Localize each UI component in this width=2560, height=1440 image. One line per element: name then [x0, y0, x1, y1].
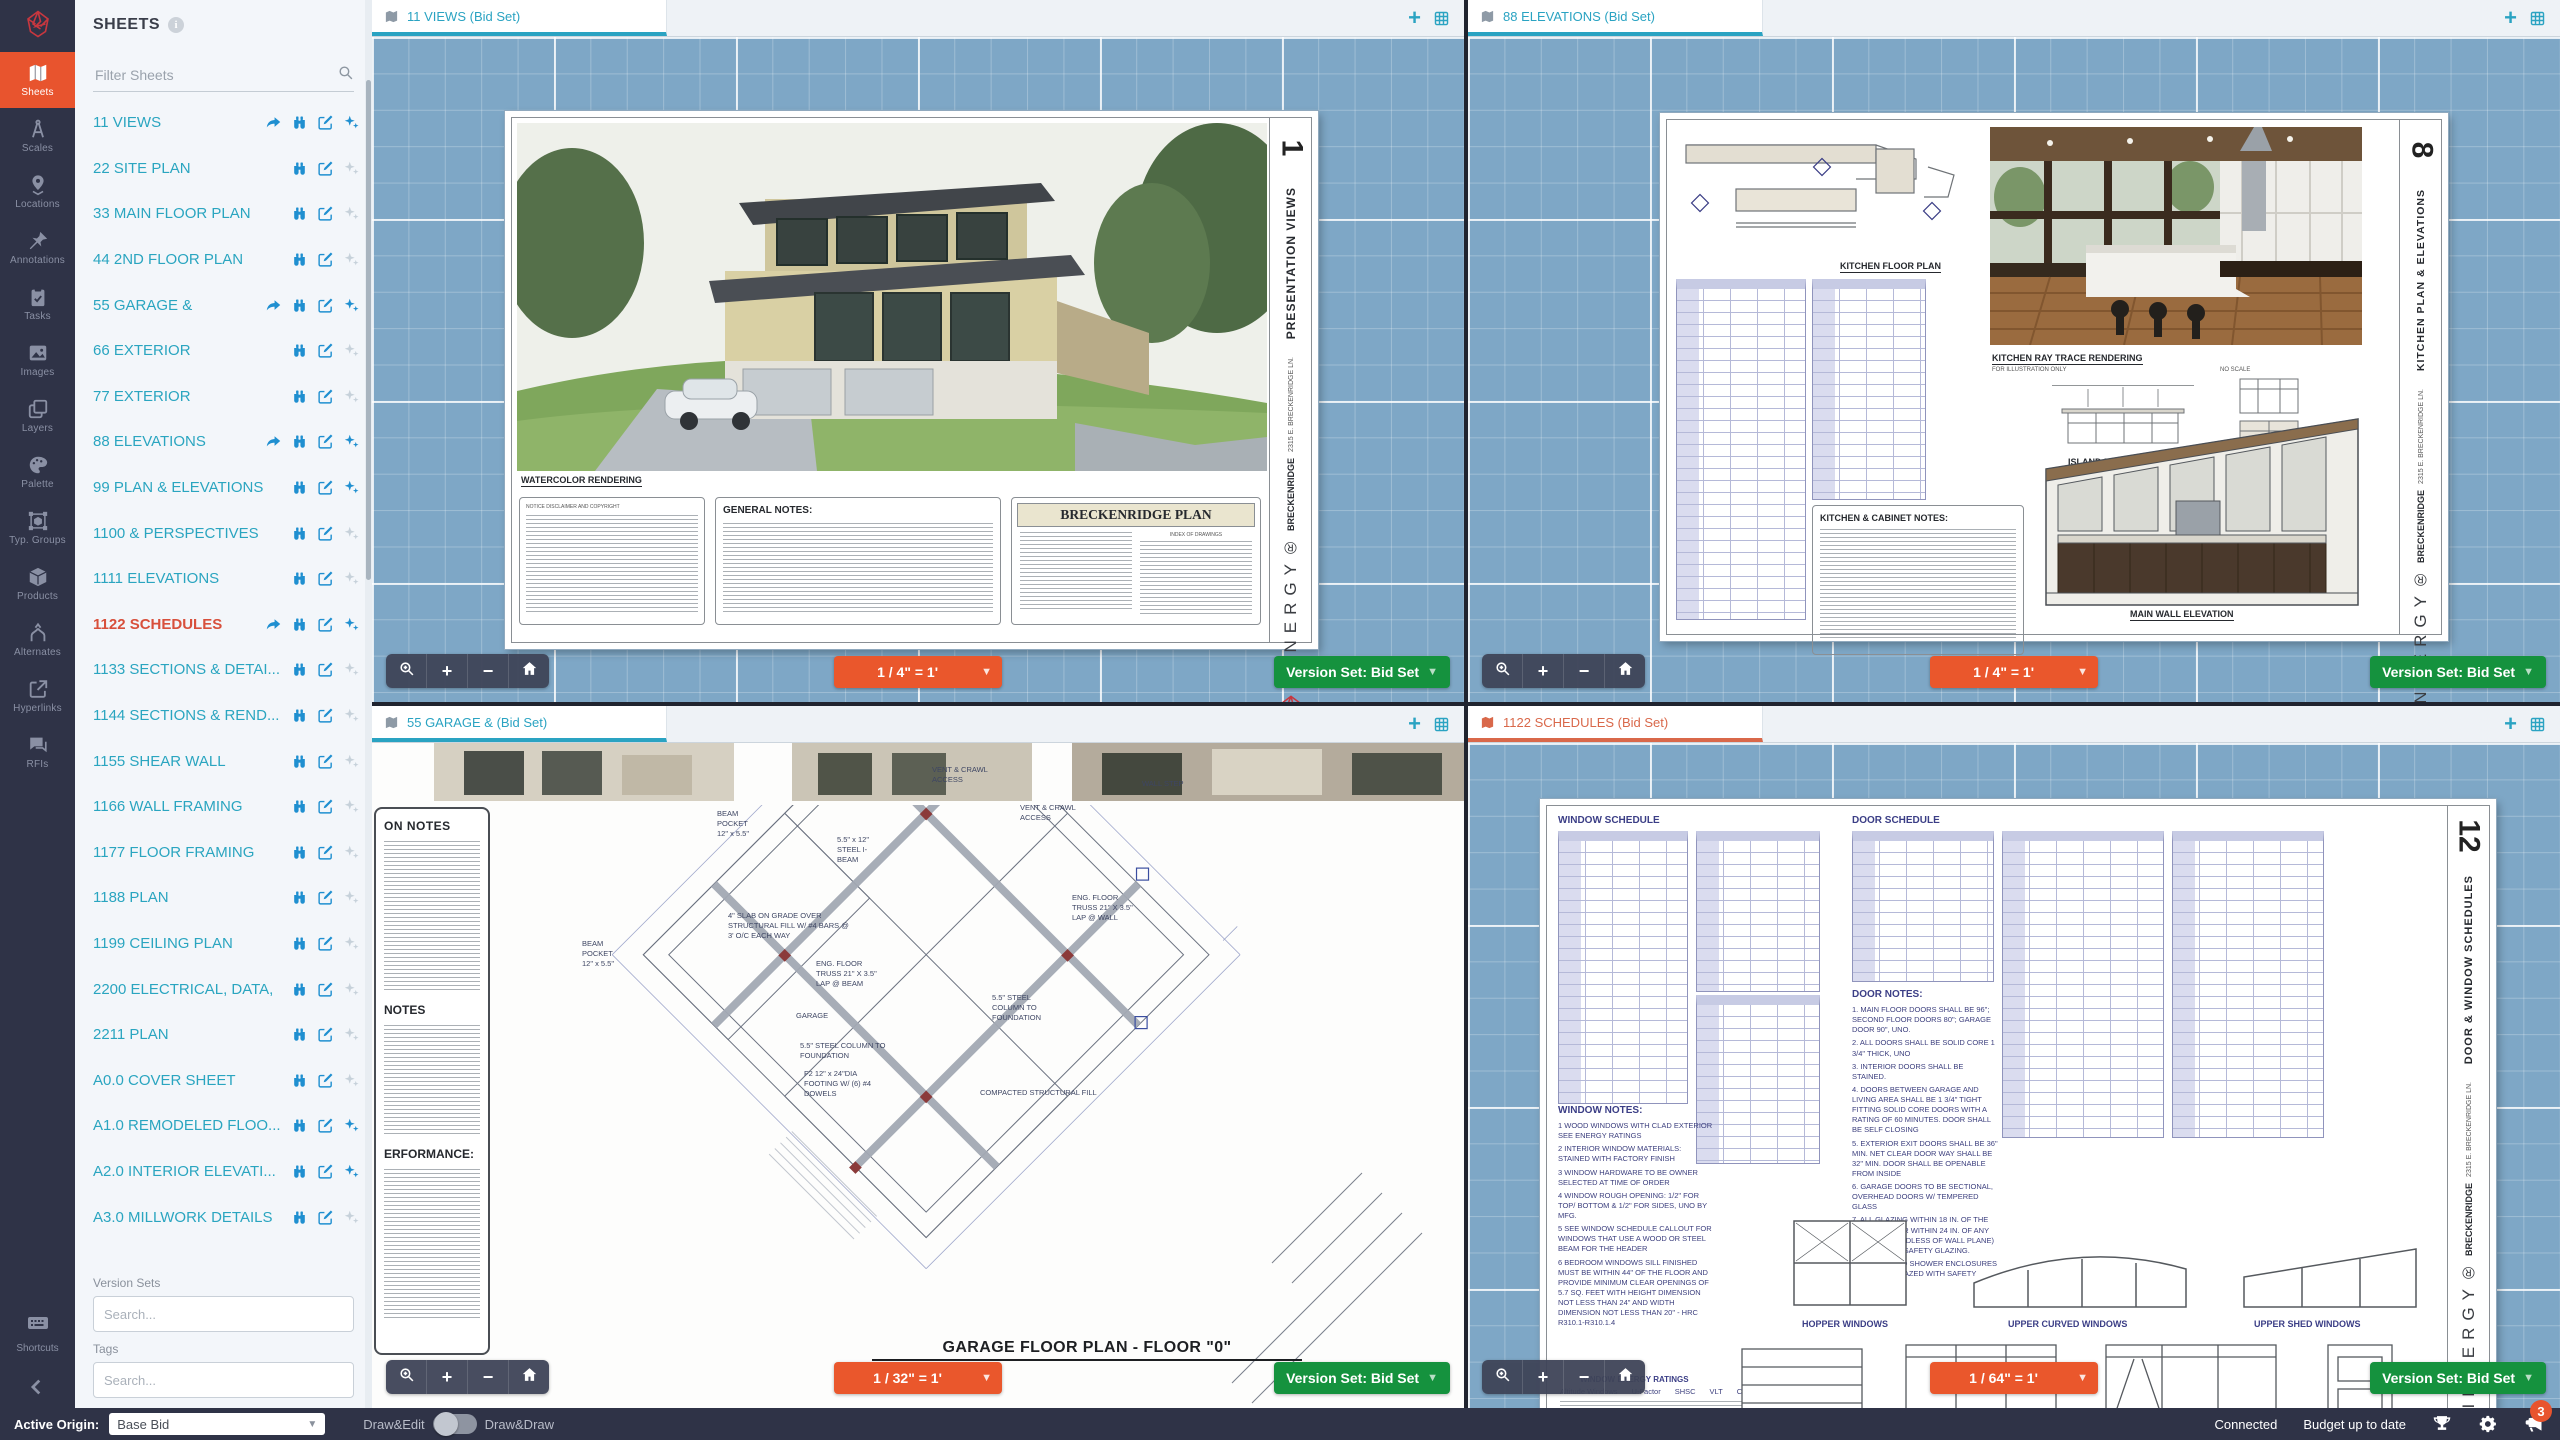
caret-down-icon: ▼ [2077, 666, 2088, 678]
add-tab-button[interactable]: + [1408, 713, 1421, 735]
sparkles-icon[interactable] [343, 753, 360, 770]
kitchen-rendering [1990, 127, 2362, 345]
sheet-project: BRECKENRIDGE [2416, 490, 2426, 563]
sheet-paper-11-views[interactable]: WATERCOLOR RENDERING NOTICE DISCLAIMER A… [505, 111, 1318, 649]
sheet-address: 2315 E. BRECKENRIDGE LN. [2466, 1082, 2473, 1177]
render-caption: WATERCOLOR RENDERING [521, 475, 642, 487]
add-tab-button[interactable]: + [2504, 7, 2517, 29]
scale-dropdown[interactable]: 1 / 32" = 1'▼ [834, 1362, 1002, 1394]
window-type-label: HOPPER WINDOWS [1802, 1319, 1888, 1329]
zoom-in-button[interactable]: + [427, 1360, 468, 1394]
project-title: BRECKENRIDGE PLAN [1017, 503, 1255, 527]
tabbar-actions: + [2490, 0, 2560, 36]
render-sub-caption: FOR ILLUSTRATION ONLY [1992, 367, 2066, 373]
edit-icon[interactable] [317, 342, 334, 359]
zoom-tool-button[interactable] [1482, 1360, 1523, 1394]
energy-col: VLT [1710, 1387, 1723, 1397]
zoom-out-button[interactable]: − [468, 654, 509, 688]
edit-icon[interactable] [317, 479, 334, 496]
sheet-list-item-1144-sections-rend[interactable]: 1144 SECTIONS & REND... [75, 693, 372, 739]
binoculars-icon[interactable] [291, 707, 308, 724]
zoom-controls: + − [386, 1360, 549, 1394]
sheet-list-item-88-elevations[interactable]: 88 ELEVATIONS [75, 419, 372, 465]
version-set-label: Version Set: Bid Set [1286, 1370, 1419, 1386]
sparkles-icon[interactable] [343, 707, 360, 724]
sheet-number: 1 [1274, 140, 1308, 157]
sheet-name: 33 MAIN FLOOR PLAN [93, 205, 291, 222]
rail-item-tasks[interactable]: Tasks [0, 276, 75, 332]
home-icon [521, 1366, 538, 1388]
sheet-list-item-a1-0-remodeled-floo[interactable]: A1.0 REMODELED FLOO... [75, 1103, 372, 1149]
sheet-name: A1.0 REMODELED FLOO... [93, 1117, 291, 1134]
edit-icon[interactable] [317, 707, 334, 724]
note-line: 6 BEDROOM WINDOWS SILL FINISHED MUST BE … [1558, 1258, 1714, 1329]
sheet-side-title: PRESENTATION VIEWS [1284, 187, 1298, 339]
sheet-list-item-77-exterior[interactable]: 77 EXTERIOR [75, 374, 372, 420]
binoculars-icon[interactable] [291, 981, 308, 998]
clipboard-icon [27, 286, 49, 308]
sheet-name: 22 SITE PLAN [93, 160, 291, 177]
statusbar-left: Active Origin: Base Bid ▼ Draw&Edit Draw… [0, 1413, 554, 1435]
binoculars-icon[interactable] [291, 1026, 308, 1043]
door-notes-title: DOOR NOTES: [1852, 989, 1923, 1000]
sheet-list: 11 VIEWS 22 SITE PLAN 33 MAIN FLOOR PLAN… [75, 100, 372, 1240]
sheet-side-title: DOOR & WINDOW SCHEDULES [2463, 875, 2475, 1064]
canvas-11-views[interactable]: WATERCOLOR RENDERING NOTICE DISCLAIMER A… [372, 37, 1464, 702]
collapse-panel-button[interactable] [26, 1376, 50, 1400]
app-logo[interactable] [0, 0, 75, 52]
gear-icon[interactable] [2478, 1414, 2498, 1434]
binoculars-icon[interactable] [291, 205, 308, 222]
zoom-tool-button[interactable] [386, 1360, 427, 1394]
note-line: 5. EXTERIOR EXIT DOORS SHALL BE 36" MIN.… [1852, 1139, 1998, 1180]
binoculars-icon[interactable] [291, 479, 308, 496]
chevron-left-icon [26, 1385, 48, 1402]
binoculars-icon[interactable] [291, 616, 308, 633]
sparkles-icon[interactable] [343, 981, 360, 998]
binoculars-icon[interactable] [291, 297, 308, 314]
notes-heading-3: ERFORMANCE: [384, 1147, 480, 1161]
sparkles-icon[interactable] [343, 661, 360, 678]
home-icon [1617, 1366, 1634, 1388]
version-set-button[interactable]: Version Set: Bid Set▼ [1274, 656, 1450, 688]
pushpin-icon [27, 230, 49, 252]
sheet-list-item-1155-shear-wall[interactable]: 1155 SHEAR WALL [75, 738, 372, 784]
tags-label: Tags [93, 1342, 354, 1356]
tabbar: 88 ELEVATIONS (Bid Set) + [1468, 0, 2560, 37]
sparkles-icon[interactable] [343, 388, 360, 405]
zoom-home-button[interactable] [1605, 654, 1645, 688]
window-schedule-table-3 [1696, 995, 1820, 1164]
logo-icon [23, 9, 53, 44]
canvas-1122-schedules[interactable]: WINDOW SCHEDULE DOOR SCHEDULE DOOR NOTES… [1468, 743, 2560, 1408]
sheet-list-item-1188-plan[interactable]: 1188 PLAN [75, 875, 372, 921]
window-type-label: UPPER CURVED WINDOWS [2008, 1319, 2127, 1329]
edit-icon[interactable] [317, 889, 334, 906]
note-line: 1. MAIN FLOOR DOORS SHALL BE 96"; SECOND… [1852, 1005, 1998, 1035]
upper-curved-windows-figure [1970, 1237, 2190, 1311]
house-rendering [517, 123, 1267, 471]
sheet-list-item-1111-elevations[interactable]: 1111 ELEVATIONS [75, 556, 372, 602]
scale-value: 1 / 32" = 1' [834, 1370, 981, 1386]
sheet-name: 1133 SECTIONS & DETAI... [93, 661, 291, 678]
kitchen-notes-title: KITCHEN & CABINET NOTES: [1820, 513, 2016, 523]
sheet-name: 77 EXTERIOR [93, 388, 291, 405]
kitchen-floor-plan-figure [1676, 127, 1976, 247]
sparkles-icon[interactable] [343, 1117, 360, 1134]
sheet-number: 12 [2452, 819, 2486, 852]
sheet-list-item-66-exterior[interactable]: 66 EXTERIOR [75, 328, 372, 374]
sparkles-icon[interactable] [343, 297, 360, 314]
sheet-list-item-1199-ceiling-plan[interactable]: 1199 CEILING PLAN [75, 921, 372, 967]
version-set-button[interactable]: Version Set: Bid Set▼ [2370, 656, 2546, 688]
zoom-controls: + − [1482, 654, 1645, 688]
tab-88-elevations[interactable]: 88 ELEVATIONS (Bid Set) [1468, 0, 1763, 36]
binoculars-icon[interactable] [291, 661, 308, 678]
share-icon[interactable] [265, 297, 282, 314]
scale-value: 1 / 4" = 1' [1930, 664, 2077, 680]
sheet-paper-1122-schedules[interactable]: WINDOW SCHEDULE DOOR SCHEDULE DOOR NOTES… [1540, 799, 2496, 1408]
binoculars-icon[interactable] [291, 844, 308, 861]
trophy-icon[interactable] [2432, 1414, 2452, 1434]
sheet-list-item-99-plan-elevations[interactable]: 99 PLAN & ELEVATIONS [75, 465, 372, 511]
sheet-list-scrollbar[interactable] [365, 0, 372, 1408]
zoom-controls: + − [386, 654, 549, 688]
rail-bottom: Shortcuts [0, 1311, 75, 1400]
sheet-name: 66 EXTERIOR [93, 342, 291, 359]
sheet-name: 2211 PLAN [93, 1026, 291, 1043]
sparkles-icon[interactable] [343, 433, 360, 450]
filter-sheets-input[interactable] [93, 66, 358, 84]
edit-icon[interactable] [317, 388, 334, 405]
rail-item-hyperlinks[interactable]: Hyperlinks [0, 668, 75, 724]
version-set-button[interactable]: Version Set: Bid Set▼ [2370, 1362, 2546, 1394]
rail-item-rfis[interactable]: RFIs [0, 724, 75, 780]
sheet-title-strip: 1 PRESENTATION VIEWS 2315 E. BRECKENRIDG… [1269, 117, 1312, 643]
alternates-icon [27, 622, 49, 644]
sheet-list-item-a0-0-cover-sheet[interactable]: A0.0 COVER SHEET [75, 1057, 372, 1103]
rail-item-sheets[interactable]: Sheets [0, 52, 75, 108]
edit-icon[interactable] [317, 570, 334, 587]
door-schedule-title: DOOR SCHEDULE [1852, 815, 1940, 826]
sheet-address: 2315 E. BRECKENRIDGE LN. [2418, 389, 2425, 484]
binoculars-icon[interactable] [291, 342, 308, 359]
binoculars-icon[interactable] [291, 798, 308, 815]
scale-dropdown[interactable]: 1 / 4" = 1'▼ [834, 656, 1002, 688]
edit-icon[interactable] [317, 160, 334, 177]
sheet-name: 88 ELEVATIONS [93, 433, 265, 450]
magnifier-icon [398, 660, 415, 682]
add-tab-button[interactable]: + [2504, 713, 2517, 735]
edit-icon[interactable] [317, 1072, 334, 1089]
sheets-panel-title: SHEETS [93, 16, 160, 34]
viewport-55-garage: 55 GARAGE & (Bid Set) + [372, 706, 1464, 1408]
info-icon[interactable]: i [168, 17, 184, 33]
tags-search-input[interactable] [93, 1362, 354, 1398]
notes-heading-1: ON NOTES [384, 819, 480, 833]
scale-dropdown[interactable]: 1 / 4" = 1'▼ [1930, 656, 2098, 688]
door-schedule-table-2 [2002, 831, 2164, 1138]
add-tab-button[interactable]: + [1408, 7, 1421, 29]
sparkles-icon[interactable] [343, 844, 360, 861]
notes-heading-2: NOTES [384, 1003, 480, 1017]
connection-status: Connected [2214, 1417, 2277, 1432]
zoom-controls: + − [1482, 1360, 1645, 1394]
sparkles-icon[interactable] [343, 251, 360, 268]
edit-icon[interactable] [317, 661, 334, 678]
sheet-list-item-1166-wall-framing[interactable]: 1166 WALL FRAMING [75, 784, 372, 830]
scrollbar-thumb[interactable] [366, 80, 371, 580]
zoom-tool-button[interactable] [1482, 654, 1523, 688]
sheet-title-strip: 8 KITCHEN PLAN & ELEVATIONS 2315 E. BREC… [2399, 119, 2442, 635]
active-origin-label: Active Origin: [14, 1417, 99, 1432]
zoom-out-button[interactable]: − [1564, 1360, 1605, 1394]
megaphone-button[interactable]: 3 [2524, 1414, 2544, 1434]
sheet-icon [1480, 9, 1495, 24]
zoom-in-button[interactable]: + [1523, 1360, 1564, 1394]
keyboard-icon [26, 1311, 50, 1340]
tabbar-actions: + [1394, 0, 1464, 36]
tab-11-views[interactable]: 11 VIEWS (Bid Set) [372, 0, 667, 36]
sparkles-icon[interactable] [343, 525, 360, 542]
sheet-list-item-1177-floor-framing[interactable]: 1177 FLOOR FRAMING [75, 830, 372, 876]
sparkles-icon[interactable] [343, 1026, 360, 1043]
door-schedule-table-3 [2172, 831, 2324, 1138]
zoom-out-button[interactable]: − [468, 1360, 509, 1394]
caret-down-icon: ▼ [1427, 1372, 1438, 1384]
note-line: 6. GARAGE DOORS TO BE SECTIONAL, OVERHEA… [1852, 1182, 1998, 1212]
rail-item-locations[interactable]: Locations [0, 164, 75, 220]
sheet-side-title: KITCHEN PLAN & ELEVATIONS [2415, 189, 2427, 371]
grid-view-button[interactable] [1433, 716, 1450, 733]
sheet-name: 1122 SCHEDULES [93, 616, 265, 633]
active-origin-value: Base Bid [117, 1417, 307, 1432]
rail-item-annotations[interactable]: Annotations [0, 220, 75, 276]
note-line: 1 WOOD WINDOWS WITH CLAD EXTERIOR SEE EN… [1558, 1121, 1714, 1141]
sheet-project: BRECKENRIDGE [1286, 458, 1296, 531]
binoculars-icon[interactable] [291, 1117, 308, 1134]
canvas-55-garage[interactable]: ON NOTES NOTES ERFORMANCE: [372, 743, 1464, 1408]
sheet-list-item-a2-0-interior-elevati[interactable]: A2.0 INTERIOR ELEVATI... [75, 1149, 372, 1195]
edit-icon[interactable] [317, 616, 334, 633]
share-icon[interactable] [265, 616, 282, 633]
render-scale-caption: NO SCALE [2220, 367, 2250, 373]
image-icon [27, 342, 49, 364]
rail-item-palette[interactable]: Palette [0, 444, 75, 500]
disclaimer-title: NOTICE DISCLAIMER AND COPYRIGHT [526, 504, 698, 510]
window-notes-title: WINDOW NOTES: [1558, 1105, 1642, 1116]
sheet-list-item-44-2nd-floor-plan[interactable]: 44 2ND FLOOR PLAN [75, 237, 372, 283]
sheet-list-item-1133-sections-detai[interactable]: 1133 SECTIONS & DETAI... [75, 647, 372, 693]
zoom-home-button[interactable] [509, 654, 549, 688]
toggle-knob[interactable] [434, 1412, 458, 1436]
rail-item-products[interactable]: Products [0, 556, 75, 612]
sheet-list-item-a3-0-millwork-details[interactable]: A3.0 MILLWORK DETAILS [75, 1194, 372, 1240]
sheet-name: 11 VIEWS [93, 114, 265, 131]
binoculars-icon[interactable] [291, 433, 308, 450]
binoculars-icon[interactable] [291, 1163, 308, 1180]
search-icon [337, 64, 354, 81]
sheet-name: 1155 SHEAR WALL [93, 753, 291, 770]
edit-icon[interactable] [317, 753, 334, 770]
rail-item-typ-groups[interactable]: Typ. Groups [0, 500, 75, 556]
binoculars-icon[interactable] [291, 114, 308, 131]
sheet-list-item-55-garage[interactable]: 55 GARAGE & [75, 282, 372, 328]
sparkles-icon[interactable] [343, 114, 360, 131]
tab-label: 88 ELEVATIONS (Bid Set) [1503, 9, 1655, 24]
edit-icon[interactable] [317, 935, 334, 952]
binoculars-icon[interactable] [291, 935, 308, 952]
version-set-label: Version Set: Bid Set [2382, 1370, 2515, 1386]
window-type-label: UPPER SHED WINDOWS [2254, 1319, 2361, 1329]
rail-item-shortcuts[interactable]: Shortcuts [16, 1311, 58, 1354]
sparkles-icon[interactable] [343, 616, 360, 633]
note-line: 4 WINDOW ROUGH OPENING: 1/2" FOR TOP/ BO… [1558, 1191, 1714, 1221]
sheet-name: A2.0 INTERIOR ELEVATI... [93, 1163, 291, 1180]
sheet-list-item-22-site-plan[interactable]: 22 SITE PLAN [75, 146, 372, 192]
sheet-list-item-1100-perspectives[interactable]: 1100 & PERSPECTIVES [75, 510, 372, 556]
sheet-name: 1100 & PERSPECTIVES [93, 525, 291, 542]
version-sets-search-input[interactable] [93, 1296, 354, 1332]
caret-down-icon: ▼ [1427, 666, 1438, 678]
binoculars-icon[interactable] [291, 889, 308, 906]
zoom-in-button[interactable]: + [427, 654, 468, 688]
sparkles-icon[interactable] [343, 889, 360, 906]
binoculars-icon[interactable] [291, 251, 308, 268]
version-set-button[interactable]: Version Set: Bid Set▼ [1274, 1362, 1450, 1394]
edit-icon[interactable] [317, 114, 334, 131]
sheet-list-item-11-views[interactable]: 11 VIEWS [75, 100, 372, 146]
zoom-out-button[interactable]: − [1564, 654, 1605, 688]
binoculars-icon[interactable] [291, 160, 308, 177]
title-block: BRECKENRIDGE PLAN INDEX OF DRAWINGS [1011, 497, 1261, 625]
sheet-name: 1166 WALL FRAMING [93, 798, 291, 815]
sparkles-icon[interactable] [343, 1209, 360, 1226]
edit-icon[interactable] [317, 525, 334, 542]
typ-groups-icon [27, 510, 49, 532]
sheet-name: A0.0 COVER SHEET [93, 1072, 291, 1089]
sparkles-icon[interactable] [343, 342, 360, 359]
sparkles-icon[interactable] [343, 479, 360, 496]
rail-item-scales[interactable]: Scales [0, 108, 75, 164]
version-set-label: Version Set: Bid Set [2382, 664, 2515, 680]
sparkles-icon[interactable] [343, 1163, 360, 1180]
edit-icon[interactable] [317, 981, 334, 998]
grid-view-button[interactable] [2529, 10, 2546, 27]
sparkles-icon[interactable] [343, 798, 360, 815]
sheet-name: 2200 ELECTRICAL, DATA, [93, 981, 291, 998]
draw-mode-toggle[interactable] [433, 1414, 477, 1434]
share-icon[interactable] [265, 114, 282, 131]
edit-icon[interactable] [317, 251, 334, 268]
kitchen-render-caption: KITCHEN RAY TRACE RENDERING [1992, 353, 2143, 365]
edit-icon[interactable] [317, 844, 334, 861]
note-line: 2 INTERIOR WINDOW MATERIALS: STAINED WIT… [1558, 1144, 1714, 1164]
zoom-in-button[interactable]: + [1523, 654, 1564, 688]
binoculars-icon[interactable] [291, 525, 308, 542]
binoculars-icon[interactable] [291, 388, 308, 405]
binoculars-icon[interactable] [291, 570, 308, 587]
garage-plan-title: GARAGE FLOOR PLAN - FLOOR "0" [872, 1339, 1302, 1361]
viewport-1122-schedules: 1122 SCHEDULES (Bid Set) + WINDOW SCHEDU… [1468, 706, 2560, 1408]
caret-down-icon: ▼ [2523, 1372, 2534, 1384]
sheet-list-item-33-main-floor-plan[interactable]: 33 MAIN FLOOR PLAN [75, 191, 372, 237]
sparkles-icon[interactable] [343, 935, 360, 952]
sheet-list-item-1122-schedules[interactable]: 1122 SCHEDULES [75, 602, 372, 648]
home-icon [521, 660, 538, 682]
scale-dropdown[interactable]: 1 / 64" = 1'▼ [1930, 1362, 2098, 1394]
tab-1122-schedules[interactable]: 1122 SCHEDULES (Bid Set) [1468, 706, 1763, 742]
sheet-paper-88-elevations[interactable]: KITCHEN FLOOR PLAN [1660, 113, 2448, 641]
binoculars-icon[interactable] [291, 753, 308, 770]
energy-col: SHSC [1675, 1387, 1696, 1397]
rail-item-images[interactable]: Images [0, 332, 75, 388]
canvas-88-elevations[interactable]: KITCHEN FLOOR PLAN [1468, 37, 2560, 702]
compass-icon [27, 118, 49, 140]
shortcuts-label: Shortcuts [16, 1343, 58, 1354]
edit-icon[interactable] [317, 205, 334, 222]
sheet-address: 2315 E. BRECKENRIDGE LN. [1288, 357, 1295, 452]
sparkles-icon[interactable] [343, 205, 360, 222]
zoom-home-button[interactable] [1605, 1360, 1645, 1394]
plan-notes-box: ON NOTES NOTES ERFORMANCE: [374, 807, 490, 1355]
draw-mode-group: Draw&Edit Draw&Draw [363, 1414, 554, 1434]
edit-icon[interactable] [317, 1026, 334, 1043]
edit-icon[interactable] [317, 1117, 334, 1134]
grid-view-button[interactable] [2529, 716, 2546, 733]
draw-edit-label: Draw&Edit [363, 1417, 424, 1432]
sheets-panel-header: SHEETS i [75, 0, 372, 40]
rail-item-layers[interactable]: Layers [0, 388, 75, 444]
sheet-list-item-2211-plan[interactable]: 2211 PLAN [75, 1012, 372, 1058]
edit-icon[interactable] [317, 798, 334, 815]
statusbar-right: Connected Budget up to date 3 [2214, 1414, 2560, 1434]
layers-icon [27, 398, 49, 420]
sparkles-icon[interactable] [343, 1072, 360, 1089]
binoculars-icon[interactable] [291, 1072, 308, 1089]
edit-icon[interactable] [317, 433, 334, 450]
zoom-home-button[interactable] [509, 1360, 549, 1394]
edit-icon[interactable] [317, 297, 334, 314]
sheet-name: 1177 FLOOR FRAMING [93, 844, 291, 861]
magnifier-icon [398, 1366, 415, 1388]
edit-icon[interactable] [317, 1209, 334, 1226]
binoculars-icon[interactable] [291, 1209, 308, 1226]
sheet-icon [1480, 715, 1495, 730]
tabbar: 1122 SCHEDULES (Bid Set) + [1468, 706, 2560, 743]
sparkles-icon[interactable] [343, 160, 360, 177]
general-notes-title: GENERAL NOTES: [723, 505, 993, 516]
share-icon[interactable] [265, 433, 282, 450]
zoom-tool-button[interactable] [386, 654, 427, 688]
active-origin-select[interactable]: Base Bid ▼ [109, 1413, 325, 1435]
viewport-11-views: 11 VIEWS (Bid Set) + [372, 0, 1464, 702]
tab-55-garage[interactable]: 55 GARAGE & (Bid Set) [372, 706, 667, 742]
panel-filters: Version Sets Tags [75, 1266, 372, 1398]
palette-icon [27, 454, 49, 476]
rail-item-alternates[interactable]: Alternates [0, 612, 75, 668]
rendering-strip [372, 743, 1464, 805]
sheet-list-item-2200-electrical-data[interactable]: 2200 ELECTRICAL, DATA, [75, 966, 372, 1012]
edit-icon[interactable] [317, 1163, 334, 1180]
tab-label: 1122 SCHEDULES (Bid Set) [1503, 715, 1668, 730]
disclaimer-block: NOTICE DISCLAIMER AND COPYRIGHT [519, 497, 705, 625]
grid-view-button[interactable] [1433, 10, 1450, 27]
sheet-name: 55 GARAGE & [93, 297, 265, 314]
note-line: 3. INTERIOR DOORS SHALL BE STAINED. [1852, 1062, 1998, 1082]
sparkles-icon[interactable] [343, 570, 360, 587]
window-notes-list: 1 WOOD WINDOWS WITH CLAD EXTERIOR SEE EN… [1558, 1121, 1714, 1331]
